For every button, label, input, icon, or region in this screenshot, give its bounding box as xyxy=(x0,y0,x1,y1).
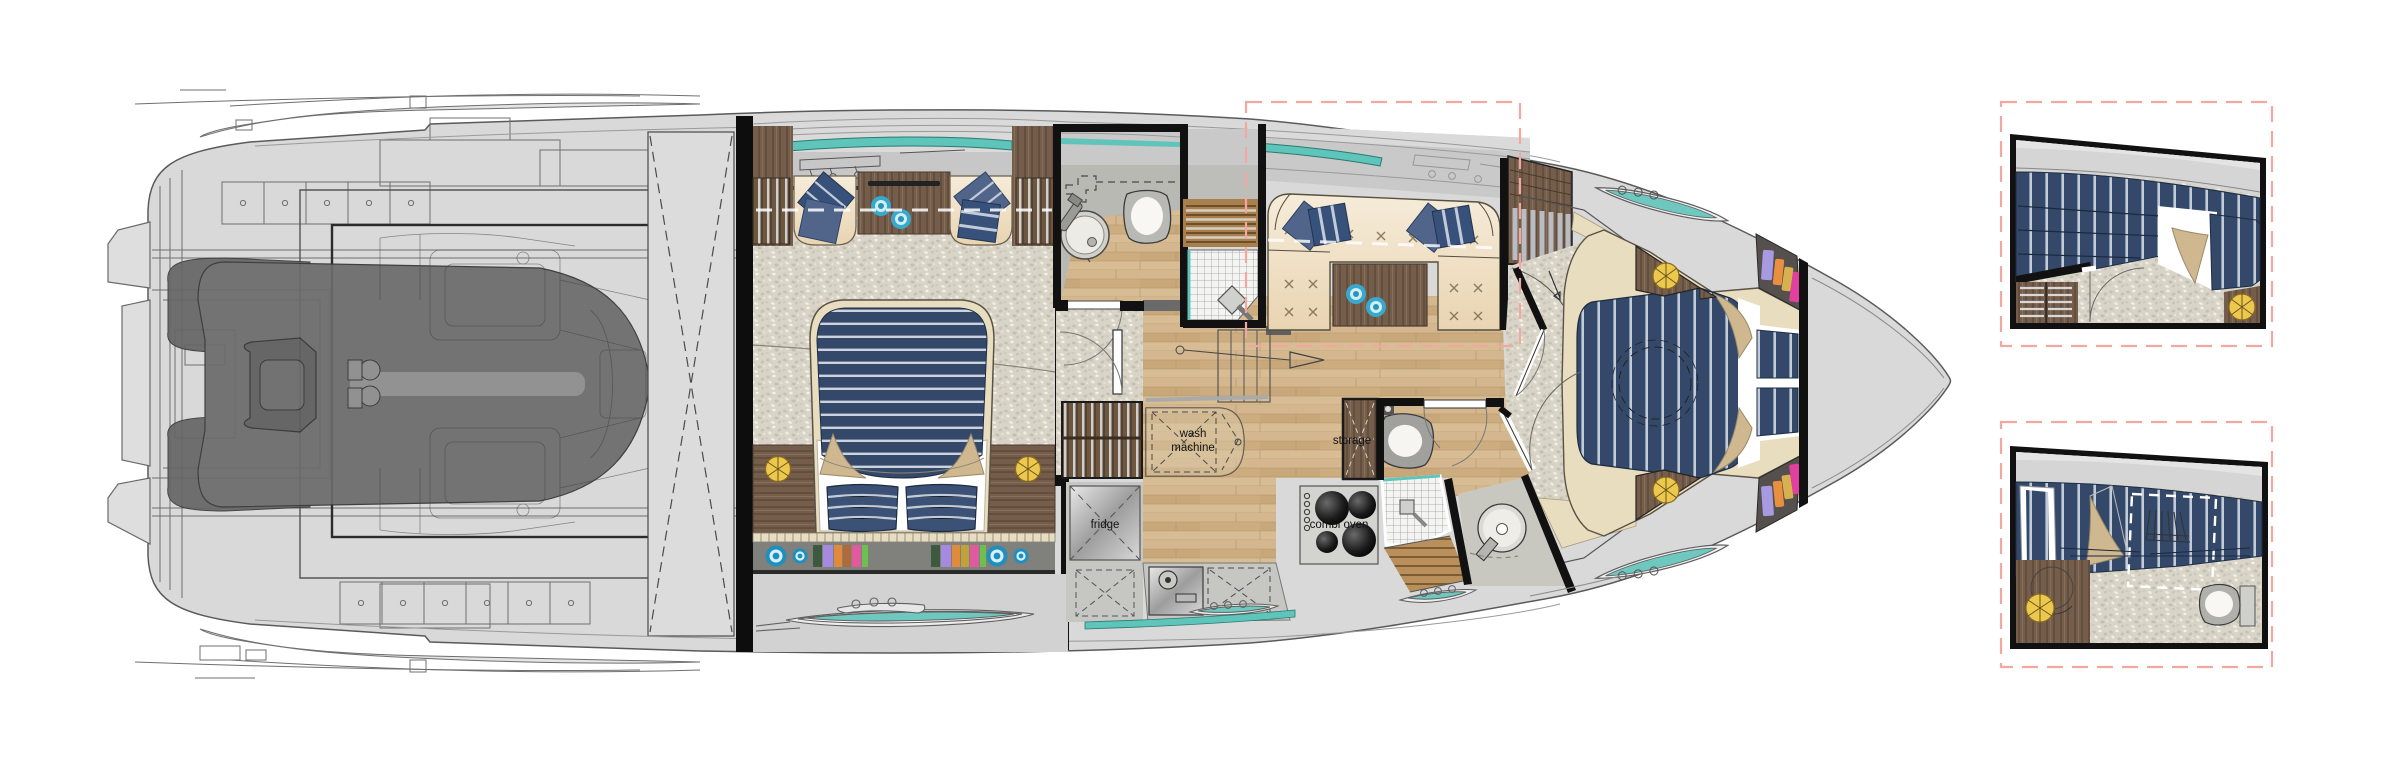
svg-text:fridge: fridge xyxy=(1091,519,1120,531)
svg-text:wash: wash xyxy=(1179,428,1207,440)
svg-text:storage: storage xyxy=(1333,435,1371,447)
svg-text:machine: machine xyxy=(1171,442,1214,454)
svg-text:combi oven: combi oven xyxy=(1310,519,1369,531)
